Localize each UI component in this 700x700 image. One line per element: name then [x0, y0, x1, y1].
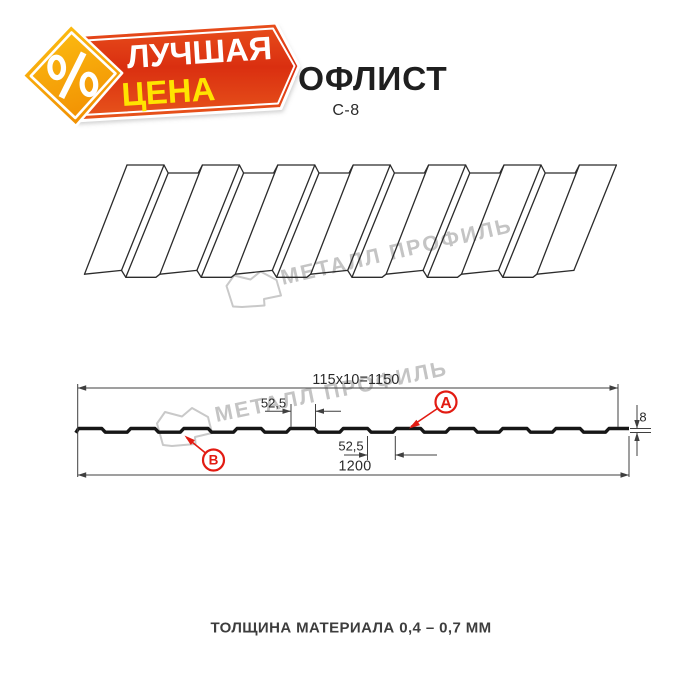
svg-text:52,5: 52,5: [261, 395, 286, 410]
svg-text:8: 8: [639, 410, 646, 425]
svg-text:ЦЕНА: ЦЕНА: [120, 70, 216, 113]
svg-text:В: В: [209, 453, 219, 468]
svg-text:ТОЛЩИНА МАТЕРИАЛА 0,4 – 0,7 ММ: ТОЛЩИНА МАТЕРИАЛА 0,4 – 0,7 ММ: [210, 620, 491, 637]
svg-text:115x10=1150: 115x10=1150: [312, 372, 399, 388]
svg-text:52,5: 52,5: [338, 439, 363, 454]
svg-text:А: А: [440, 395, 452, 412]
svg-text:С-8: С-8: [332, 102, 359, 119]
svg-text:1200: 1200: [338, 459, 371, 475]
